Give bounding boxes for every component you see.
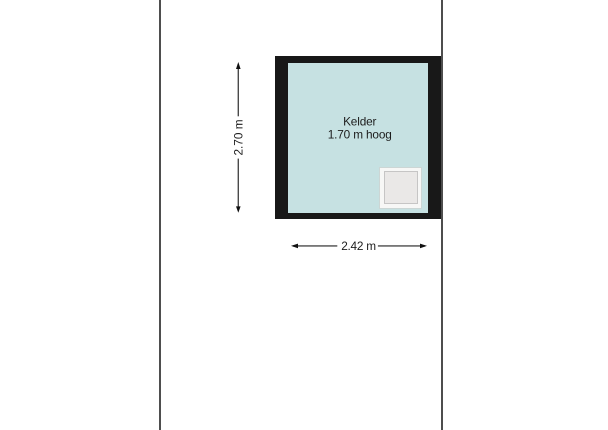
svg-text:2.70 m: 2.70 m — [231, 119, 245, 155]
svg-text:Kelder: Kelder — [343, 114, 376, 128]
svg-text:2.42 m: 2.42 m — [341, 239, 376, 253]
svg-text:1.70 m hoog: 1.70 m hoog — [328, 128, 392, 142]
